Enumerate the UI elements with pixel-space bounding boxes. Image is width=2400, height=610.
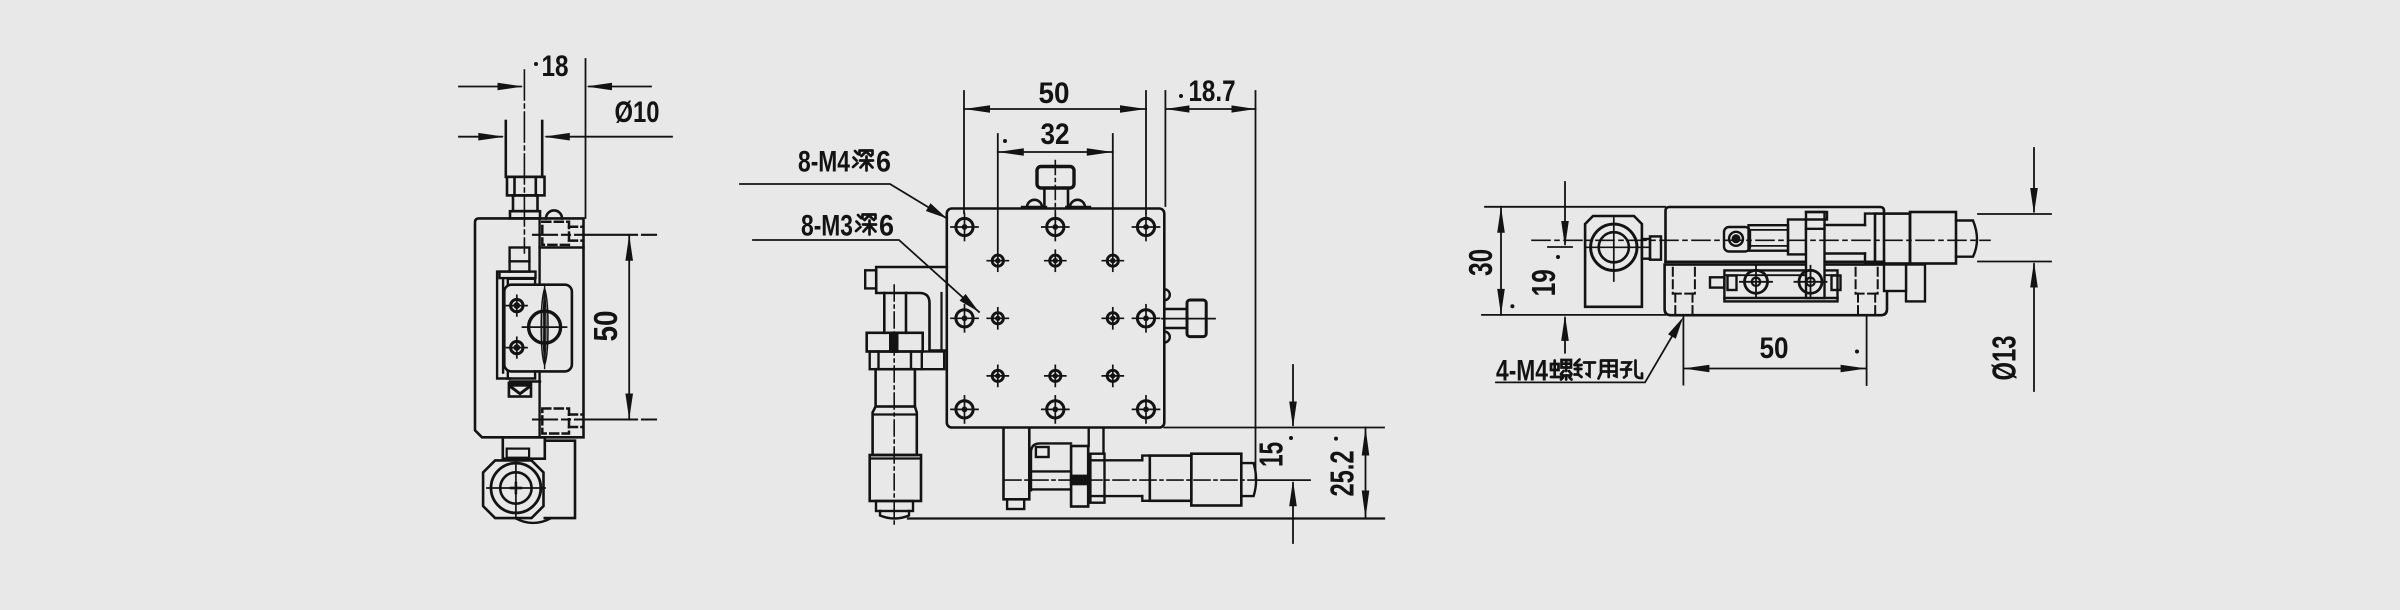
svg-text:50: 50 bbox=[1039, 77, 1070, 110]
svg-text:8-M3: 8-M3 bbox=[801, 210, 853, 243]
svg-text:6: 6 bbox=[879, 210, 894, 243]
svg-text:18.7: 18.7 bbox=[1189, 75, 1236, 108]
svg-text:32: 32 bbox=[1041, 118, 1070, 151]
svg-text:15: 15 bbox=[1252, 442, 1289, 467]
svg-text:30: 30 bbox=[1462, 249, 1499, 276]
svg-text:19: 19 bbox=[1525, 269, 1562, 296]
svg-text:6: 6 bbox=[876, 146, 891, 179]
svg-text:18: 18 bbox=[542, 50, 569, 83]
svg-text:50: 50 bbox=[1760, 332, 1789, 365]
svg-text:Ø13: Ø13 bbox=[1986, 336, 2023, 381]
svg-text:Ø10: Ø10 bbox=[615, 96, 660, 129]
svg-text:50: 50 bbox=[587, 311, 624, 342]
svg-text:25.2: 25.2 bbox=[1324, 451, 1361, 497]
svg-text:8-M4: 8-M4 bbox=[798, 146, 850, 179]
